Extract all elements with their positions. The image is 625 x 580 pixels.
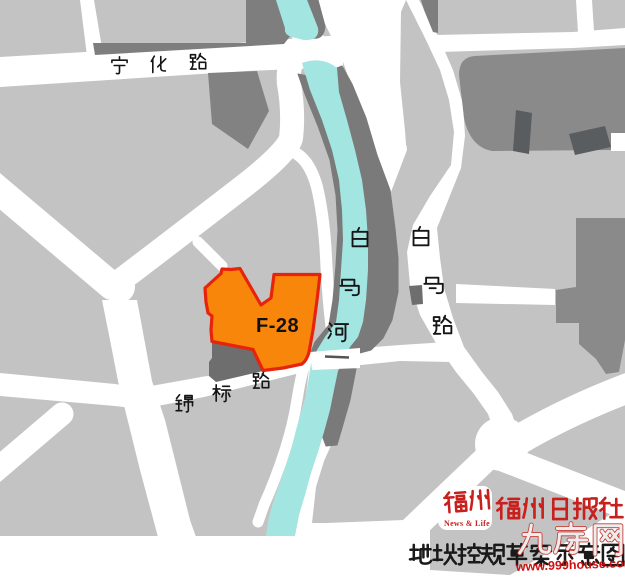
svg-text:F-28: F-28	[256, 315, 299, 337]
svg-text:News & Life: News & Life	[444, 519, 490, 528]
